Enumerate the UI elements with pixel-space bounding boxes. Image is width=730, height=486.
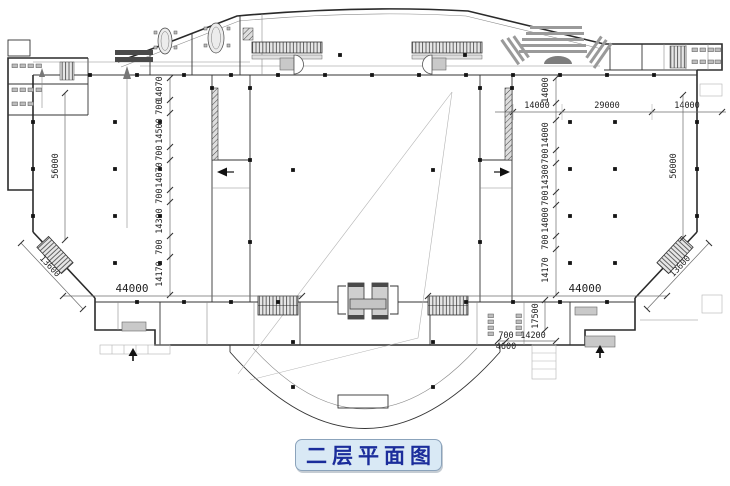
dim-right-bay-1: 14000 <box>541 77 551 103</box>
exit-arrow-right-wing <box>494 168 510 177</box>
stair-direction-arrow <box>123 66 131 228</box>
dim-lobby-chain-2: 14200 <box>520 331 546 341</box>
interior-walls <box>33 14 708 345</box>
planter <box>575 307 597 315</box>
dim-lobby: 17500 700 14200 4600 <box>495 297 559 352</box>
exit-arrow-left-wing <box>217 168 234 177</box>
dim-right-bay-3: 700 <box>541 148 551 163</box>
dim-right-bay-8: 14170 <box>541 257 551 283</box>
dim-left-bay-4: 700 <box>155 145 165 160</box>
stair-bottom-right <box>428 296 468 315</box>
escalator-top-left <box>252 42 322 74</box>
building-outline <box>8 9 722 429</box>
dim-right-bottom-width: 44000 <box>568 282 601 295</box>
dim-right-bay-2: 14000 <box>541 122 551 148</box>
drawing-title: 二层平面图 <box>295 439 442 471</box>
dim-left-bay-7: 14300 <box>155 208 165 234</box>
planter <box>122 322 146 331</box>
dim-left-bay-2: 700 <box>155 99 165 114</box>
dim-right-bay-4: 14300 <box>541 164 551 190</box>
dim-entry-width: 4600 <box>496 342 516 352</box>
floor-plan-sheet: 14000 29000 14000 56000 56000 <box>0 0 730 486</box>
dim-lobby-depth: 17500 <box>531 303 541 329</box>
dim-right-height: 56000 <box>669 153 679 179</box>
dim-left-bottom-width: 44000 <box>115 282 148 295</box>
sight-lines <box>238 92 452 380</box>
stair-bottom-left <box>258 296 298 315</box>
shear-wall-left <box>212 88 218 160</box>
toilet-fixtures-right <box>670 46 721 68</box>
shear-wall-right <box>505 88 512 160</box>
dim-left-bay-8: 700 <box>155 239 165 254</box>
dim-top-3: 14000 <box>674 101 700 111</box>
escalator-center <box>338 283 398 319</box>
podium <box>544 56 572 64</box>
dim-left-bay-5: 14070 <box>155 162 165 188</box>
dim-left-bay-1: 14070 <box>155 76 165 102</box>
floor-plan-drawing: 14000 29000 14000 56000 56000 <box>0 0 730 486</box>
dim-top-chain: 14000 29000 14000 <box>495 101 726 120</box>
dim-right-bay-7: 700 <box>541 234 551 249</box>
escalator-top-right <box>412 42 482 74</box>
drawing-title-label: 二层平面图 <box>306 440 436 470</box>
dim-left-height: 56000 <box>51 153 61 179</box>
dim-lobby-chain-1: 700 <box>498 331 513 341</box>
dim-right-bay-6: 14000 <box>541 207 551 233</box>
dim-left-bay-3: 14500 <box>155 118 165 144</box>
dim-left-bay-6: 700 <box>155 188 165 203</box>
dim-left-bay-chain: 14070 700 14500 700 14070 700 14300 700 … <box>155 75 173 298</box>
dim-right-height: 56000 <box>669 92 686 241</box>
dim-top-2: 29000 <box>594 101 620 111</box>
dim-left-height: 56000 <box>51 90 68 243</box>
dim-left-bay-9: 14170 <box>155 261 165 287</box>
dim-right-bay-5: 700 <box>541 190 551 205</box>
